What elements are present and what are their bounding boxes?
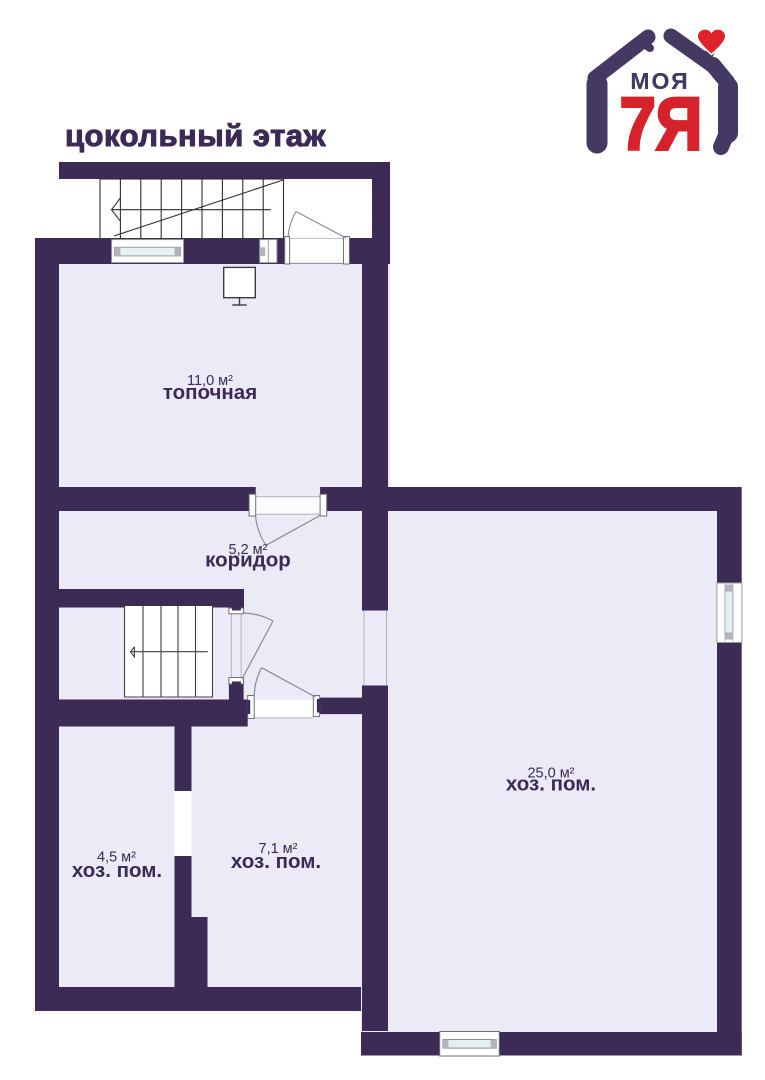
svg-text:коридор: коридор: [205, 549, 291, 572]
svg-text:7Я: 7Я: [620, 82, 703, 165]
svg-text:хоз. пом.: хоз. пом.: [72, 859, 162, 882]
svg-text:цокольный этаж: цокольный этаж: [65, 118, 327, 153]
svg-text:топочная: топочная: [163, 381, 257, 404]
svg-text:хоз. пом.: хоз. пом.: [231, 850, 321, 873]
svg-text:хоз. пом.: хоз. пом.: [506, 773, 596, 796]
